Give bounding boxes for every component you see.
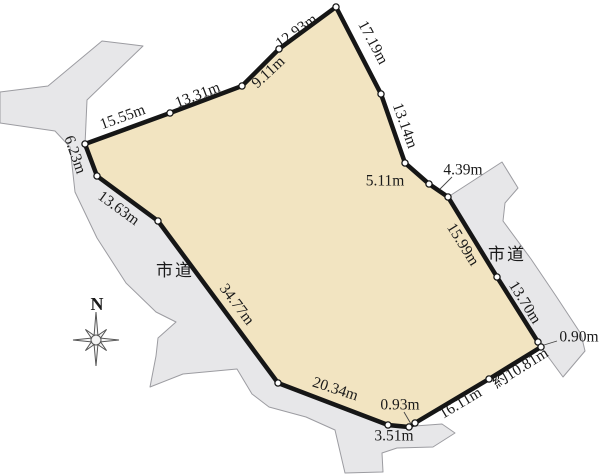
measurement-label: 0.93m — [380, 397, 419, 414]
site-plan-diagram: 12.93m17.19m9.11m13.31m15.55m6.23m13.63m… — [0, 0, 600, 474]
vertex-dot — [333, 4, 339, 10]
measurement-label: 0.90m — [559, 329, 598, 346]
vertex-dot — [445, 194, 451, 200]
vertex-dot — [82, 141, 88, 147]
vertex-dot — [239, 83, 245, 89]
vertex-dot — [94, 173, 100, 179]
measurement-label: 4.39m — [443, 162, 482, 179]
measurement-label: 5.11m — [366, 173, 405, 190]
vertex-dot — [412, 420, 418, 426]
vertex-dot — [275, 380, 281, 386]
vertex-dot — [494, 274, 500, 280]
road-label: 市道 — [488, 245, 526, 264]
vertex-dot — [402, 160, 408, 166]
vertex-dot — [167, 110, 173, 116]
compass-star — [73, 312, 119, 366]
plan-canvas: 12.93m17.19m9.11m13.31m15.55m6.23m13.63m… — [0, 0, 600, 474]
vertex-dot — [378, 91, 384, 97]
north-label: N — [91, 294, 104, 314]
road-label: 市道 — [156, 261, 194, 280]
measurement-label: 3.51m — [374, 428, 413, 445]
vertex-dot — [426, 181, 432, 187]
compass-rose: N — [73, 294, 119, 366]
vertex-dot — [155, 218, 161, 224]
leader-line — [440, 177, 452, 189]
